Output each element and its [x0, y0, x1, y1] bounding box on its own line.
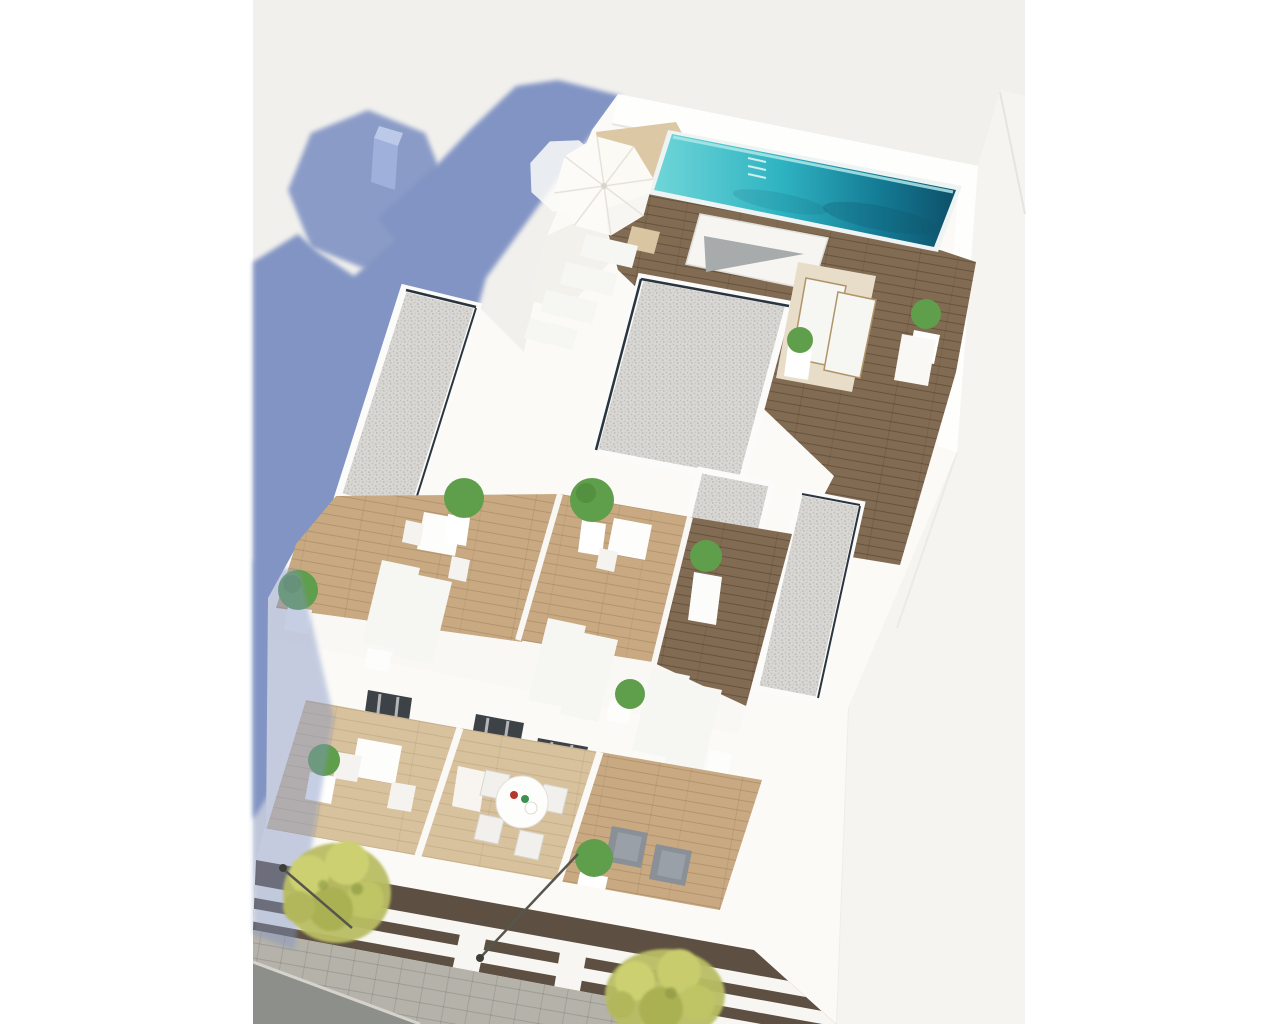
terrace-chair — [596, 548, 618, 572]
plant-shade — [576, 483, 596, 503]
terrace-chair — [402, 520, 424, 546]
side-table — [706, 750, 732, 774]
dining-chair — [514, 830, 544, 860]
lamp-head — [476, 954, 484, 962]
plant-pot — [444, 514, 470, 546]
armchair-cushion — [657, 850, 686, 880]
potted-plant — [615, 679, 645, 709]
table-item-green — [521, 795, 529, 803]
aerial-render-svg — [0, 0, 1280, 1024]
armchair-cushion — [613, 832, 642, 862]
tree-shade-dot — [351, 883, 363, 895]
round-dining-table — [496, 776, 548, 828]
table-item-plate — [525, 802, 537, 814]
balcony-chair — [387, 782, 416, 812]
potted-plant — [690, 540, 722, 572]
table-item-red — [510, 791, 518, 799]
potted-plant — [575, 839, 613, 877]
potted-plant — [787, 327, 813, 353]
dining-chair — [474, 814, 504, 844]
potted-plant — [444, 478, 484, 518]
potted-plant — [911, 299, 941, 329]
side-table — [364, 648, 392, 672]
render-canvas — [0, 0, 1280, 1024]
draped-towel — [452, 766, 486, 812]
parasol-shadow — [288, 110, 448, 270]
plant-pedestal — [688, 572, 722, 625]
lamp-head — [279, 864, 287, 872]
shadow-cube-side — [371, 138, 398, 190]
terrace-chair — [448, 556, 470, 582]
